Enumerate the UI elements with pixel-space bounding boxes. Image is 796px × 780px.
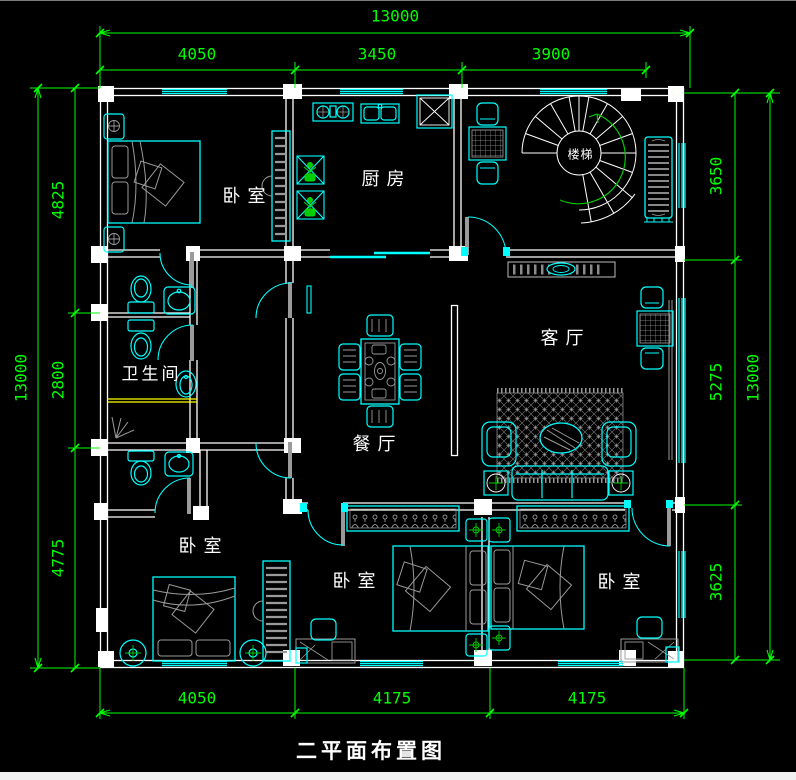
dim-top-total: 13000 [371,7,419,26]
basin-third [165,452,193,476]
room-label-living: 客厅 [538,324,591,350]
dim-right-2: 5275 [707,363,726,402]
corner-table-set [637,287,673,369]
cad-floorplan-screen: 卧室 厨房 楼梯 卫生间 餐厅 客厅 卧室 卧室 卧室 13000 4050 3… [0,0,796,780]
hall-table-set [469,103,506,184]
dim-left-total: 13000 [12,354,31,402]
dim-left-1: 4825 [49,181,68,220]
dim-left-2: 2800 [49,361,68,400]
shower-spray [112,417,134,438]
plant-boxes [297,156,324,219]
desk [296,619,355,663]
bedroom-bottom-right-furniture [489,506,679,662]
dim-bottom-3: 4175 [568,689,607,708]
shoe-cabinet [508,262,615,277]
room-label-bathroom: 卫生间 [119,360,182,385]
dim-top-1: 4050 [178,45,217,64]
kitchen-furniture [297,95,452,219]
bedroom-bottom-left-furniture [120,561,290,666]
room-label-bedroom-bottom-middle: 卧室 [330,567,383,593]
room-label-staircase: 楼梯 [564,146,593,163]
doors [155,217,673,546]
living-room-furniture [482,287,673,500]
room-label-bedroom-bottom-right: 卧室 [595,568,648,594]
partition-screen-wall [452,306,458,456]
toilet-lower [128,320,154,359]
floor-plan-drawing [0,0,796,780]
drawing-title: 二平面布置图 [296,735,446,765]
dim-right-1: 3650 [707,157,726,196]
room-label-kitchen: 厨房 [359,165,412,191]
kitchen-sliding-door [330,253,430,257]
bathroom-threshold-line [107,399,197,402]
room-label-bedroom-bottom-left: 卧室 [176,532,229,558]
dim-bottom-2: 4175 [373,689,412,708]
toilet-third [128,451,154,485]
bedroom-bottom-middle-furniture [296,506,488,663]
window-bottom-bar[interactable] [0,772,796,780]
toilet-upper [128,276,154,313]
room-label-bedroom-top-left: 卧室 [220,182,273,208]
dining-set [339,315,421,427]
dim-right-3: 3625 [707,563,726,602]
dim-top-3: 3900 [532,45,571,64]
dim-bottom-1: 4050 [178,689,217,708]
room-label-dining: 餐厅 [350,430,403,456]
coffee-table [540,423,582,453]
radiator [644,137,673,222]
dim-left-3: 4775 [49,539,68,578]
dim-right-total: 13000 [744,354,763,402]
dim-top-2: 3450 [358,45,397,64]
